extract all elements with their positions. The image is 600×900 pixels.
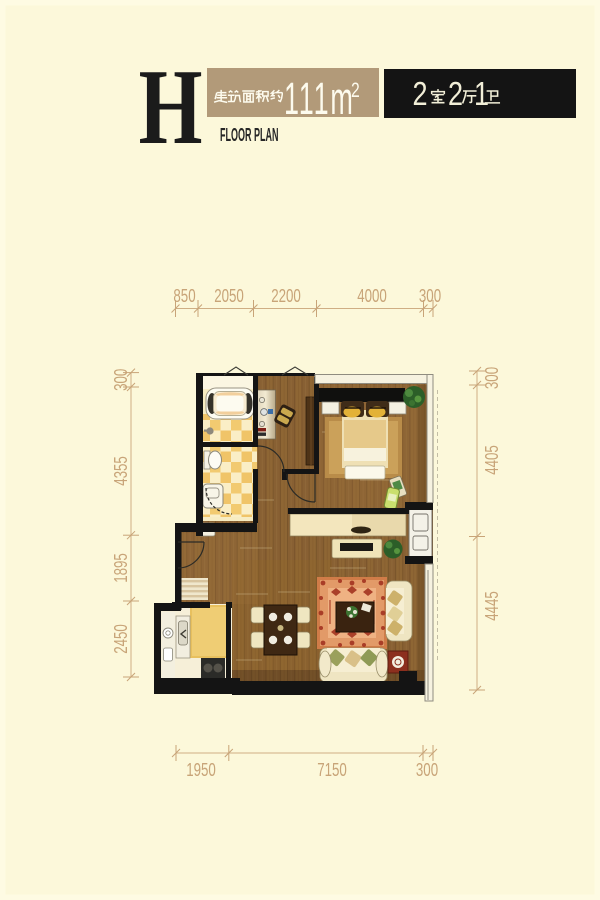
svg-text:2050: 2050 <box>214 286 244 307</box>
svg-text:4355: 4355 <box>111 456 132 486</box>
svg-text:111m: 111m <box>284 73 355 124</box>
svg-text:850: 850 <box>173 286 195 307</box>
svg-text:2: 2 <box>448 77 463 113</box>
svg-text:2450: 2450 <box>111 624 132 654</box>
svg-text:7150: 7150 <box>317 760 347 781</box>
svg-text:2: 2 <box>412 77 427 113</box>
svg-text:300: 300 <box>111 369 132 391</box>
svg-text:2200: 2200 <box>271 286 301 307</box>
svg-text:1: 1 <box>474 77 489 113</box>
svg-text:1895: 1895 <box>111 553 132 583</box>
svg-text:4405: 4405 <box>482 445 503 475</box>
svg-text:4445: 4445 <box>482 591 503 621</box>
svg-text:4000: 4000 <box>357 286 387 307</box>
svg-text:1950: 1950 <box>186 760 216 781</box>
svg-text:H: H <box>139 47 203 166</box>
svg-text:300: 300 <box>416 760 438 781</box>
svg-text:300: 300 <box>419 286 441 307</box>
svg-text:2: 2 <box>351 78 360 102</box>
svg-text:300: 300 <box>482 367 503 389</box>
svg-text:FLOOR PLAN: FLOOR PLAN <box>220 126 278 146</box>
